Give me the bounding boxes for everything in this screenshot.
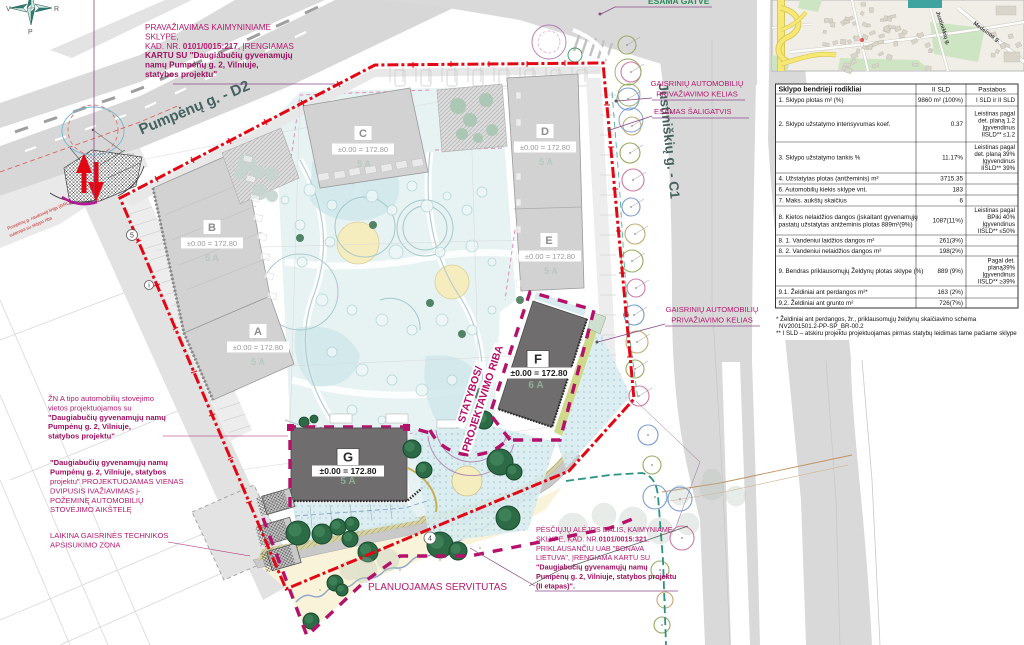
- svg-text:GAISRINIŲ AUTOMOBILIŲ: GAISRINIŲ AUTOMOBILIŲ: [651, 79, 744, 88]
- svg-text:planą39%: planą39%: [988, 265, 1016, 272]
- svg-text:Pagal det.: Pagal det.: [988, 258, 1016, 265]
- svg-text:Sklypo bendrieji rodikliai: Sklypo bendrieji rodikliai: [779, 87, 862, 94]
- svg-text:KARTU SU "Daugiabučių gyvenamų: KARTU SU "Daugiabučių gyvenamųjų: [145, 51, 293, 60]
- svg-text:SKLYPE, KAD. NR.0101/0015:321,: SKLYPE, KAD. NR.0101/0015:321,: [536, 534, 649, 543]
- svg-text:±0.00 = 172.80: ±0.00 = 172.80: [525, 252, 575, 261]
- svg-text:1087(11%): 1087(11%): [933, 218, 963, 225]
- svg-text:±0.00 = 172.80: ±0.00 = 172.80: [338, 145, 388, 154]
- svg-text:GAISRINIŲ AUTOMOBILIŲ: GAISRINIŲ AUTOMOBILIŲ: [666, 305, 759, 314]
- svg-text:5: 5: [130, 232, 134, 239]
- svg-text:1. Sklypo plotas m² (%): 1. Sklypo plotas m² (%): [779, 97, 844, 104]
- svg-text:(II etapas)".: (II etapas)".: [536, 581, 575, 590]
- svg-text:"Daugiabučių gyvenamųjų namų: "Daugiabučių gyvenamųjų namų: [50, 458, 168, 467]
- svg-text:7. Maks. aukštų skaičius: 7. Maks. aukštų skaičius: [779, 198, 847, 205]
- svg-text:"Daugiabučių gyvenamųjų namų: "Daugiabučių gyvenamųjų namų: [536, 563, 648, 572]
- svg-text:pastatų užstatytas antžeminis: pastatų užstatytas antžeminis plotas 889…: [779, 221, 913, 228]
- svg-text:Įgyvendinus: Įgyvendinus: [982, 125, 1015, 132]
- svg-text:R: R: [54, 6, 59, 13]
- svg-text:G: G: [343, 450, 353, 465]
- svg-text:B: B: [208, 222, 216, 234]
- svg-text:11.17%: 11.17%: [942, 155, 963, 162]
- svg-text:6 A: 6 A: [528, 380, 543, 391]
- svg-text:PRIVAŽIAVIMO KELIAS: PRIVAŽIAVIMO KELIAS: [656, 90, 738, 99]
- svg-text:D: D: [541, 126, 549, 138]
- svg-text:IISLD** ≤50%: IISLD** ≤50%: [978, 228, 1016, 235]
- svg-text:5 A: 5 A: [205, 253, 219, 263]
- svg-text:198(2%): 198(2%): [939, 248, 963, 255]
- svg-text:projektu" PROJEKTUOJAMAS VIENA: projektu" PROJEKTUOJAMAS VIENAS: [50, 477, 184, 486]
- svg-text:8. Kietos nelaidžios dangos (į: 8. Kietos nelaidžios dangos (įskaitant g…: [779, 214, 919, 221]
- svg-text:PRIVAŽIAVIMO KELIAS: PRIVAŽIAVIMO KELIAS: [671, 316, 753, 325]
- svg-text:"Daugiabučių gyvenamųjų namų: "Daugiabučių gyvenamųjų namų: [48, 413, 166, 422]
- svg-text:±0.00 = 172.80: ±0.00 = 172.80: [520, 143, 570, 152]
- svg-text:LAIKINA GAISRINĖS TECHNIKOS: LAIKINA GAISRINĖS TECHNIKOS: [50, 531, 168, 540]
- svg-text:±0.00 = 172.80: ±0.00 = 172.80: [187, 239, 237, 248]
- svg-text:6: 6: [959, 198, 963, 205]
- svg-text:9.2. Želdiniai ant grunto m²: 9.2. Želdiniai ant grunto m²: [779, 298, 854, 307]
- svg-text:Pumpėnų g. 2, Vilniuje,: Pumpėnų g. 2, Vilniuje,: [48, 422, 131, 431]
- svg-text:PĖSČIŲJŲ ALĖJOS DALIS, KAIMYNI: PĖSČIŲJŲ ALĖJOS DALIS, KAIMYNIAME: [536, 525, 673, 534]
- svg-text:namų Pumpėnų g. 2, Vilniuje,: namų Pumpėnų g. 2, Vilniuje,: [145, 61, 259, 70]
- svg-text:Įgyvendinus: Įgyvendinus: [982, 272, 1015, 279]
- svg-text:ESAMAS ŠALIGATVIS: ESAMAS ŠALIGATVIS: [654, 107, 732, 116]
- svg-text:5 A: 5 A: [251, 357, 265, 367]
- svg-text:* Želdiniai ant perdangos, žr.: * Želdiniai ant perdangos, žr., priklaus…: [776, 315, 977, 323]
- svg-text:9.1. Želdiniai ant perdangos m: 9.1. Želdiniai ant perdangos m²*: [779, 287, 869, 296]
- svg-text:APSISUKIMO ZONA: APSISUKIMO ZONA: [50, 540, 121, 549]
- svg-text:5 A: 5 A: [357, 159, 371, 169]
- svg-text:statybos projektu": statybos projektu": [145, 70, 217, 79]
- svg-text:5 A: 5 A: [544, 266, 558, 276]
- svg-text:±0.00 = 172.80: ±0.00 = 172.80: [233, 343, 283, 352]
- svg-text:261(3%): 261(3%): [939, 238, 963, 245]
- svg-text:Įgyvendinus: Įgyvendinus: [982, 158, 1015, 165]
- svg-text:3. Sklypo užstatymo tankis %: 3. Sklypo užstatymo tankis %: [779, 155, 861, 162]
- svg-text:Pumpėnų g. 2, Vilniuje, statyb: Pumpėnų g. 2, Vilniuje, statybos: [50, 467, 166, 476]
- svg-text:2. Sklypo užstatymo intensyvum: 2. Sklypo užstatymo intensyvumas koef.: [779, 121, 891, 128]
- svg-text:8. 1. Vandeniui laidžios dango: 8. 1. Vandeniui laidžios dangos m²: [779, 238, 875, 245]
- svg-text:Pastabos: Pastabos: [978, 87, 1006, 94]
- svg-text:ESAMA GATVĖ: ESAMA GATVĖ: [648, 0, 710, 6]
- svg-text:I SLD ir II SLD: I SLD ir II SLD: [976, 97, 1016, 104]
- svg-text:3715.35: 3715.35: [940, 176, 963, 183]
- svg-text:II SLD: II SLD: [932, 87, 951, 94]
- svg-text:BPiki 40%: BPiki 40%: [987, 214, 1015, 221]
- svg-text:726(7%): 726(7%): [939, 300, 963, 307]
- svg-text:0.37: 0.37: [951, 121, 964, 128]
- svg-text:4: 4: [428, 535, 432, 542]
- svg-text:5 A: 5 A: [539, 157, 553, 167]
- svg-text:R12: R12: [127, 152, 135, 157]
- svg-text:E: E: [545, 235, 552, 247]
- svg-text:4. Užstatytas plotas (antžemin: 4. Užstatytas plotas (antžeminis) m²: [779, 176, 879, 183]
- svg-text:det. planą 1.2: det. planą 1.2: [978, 118, 1016, 125]
- svg-text:9. Bendras priklausomųjų Želdy: 9. Bendras priklausomųjų Želdynų plotas …: [779, 266, 924, 275]
- svg-text:5 A: 5 A: [340, 476, 355, 487]
- svg-text:6. Automobilių kiekis sklype v: 6. Automobilių kiekis sklype vnt.: [779, 187, 868, 194]
- svg-text:9860 m² (100%): 9860 m² (100%): [918, 97, 963, 104]
- svg-text:IISLD** ≤1.2: IISLD** ≤1.2: [982, 132, 1016, 139]
- svg-text:IISLD** 39%: IISLD** 39%: [981, 165, 1015, 172]
- svg-text:±0.00 = 172.80: ±0.00 = 172.80: [320, 466, 377, 476]
- svg-text:LIETUVA", ĮRENGIAMA KARTU SU: LIETUVA", ĮRENGIAMA KARTU SU: [536, 553, 650, 562]
- svg-text:163 (2%): 163 (2%): [937, 289, 963, 296]
- svg-text:NV2001501.2-PP-SP_BR-00.2: NV2001501.2-PP-SP_BR-00.2: [779, 323, 864, 330]
- svg-text:Leistinas pagal: Leistinas pagal: [974, 111, 1015, 118]
- svg-text:P: P: [28, 29, 33, 36]
- svg-text:Leistinas pagal: Leistinas pagal: [974, 207, 1015, 214]
- svg-text:POŽEMINĘ AUTOMOBILIŲ: POŽEMINĘ AUTOMOBILIŲ: [50, 496, 144, 505]
- svg-text:STOVĖJIMO AIKŠTELĘ: STOVĖJIMO AIKŠTELĘ: [50, 505, 132, 514]
- svg-text:F: F: [534, 352, 542, 367]
- svg-text:det. planą 39%: det. planą 39%: [974, 151, 1015, 158]
- svg-text:statybos projektu": statybos projektu": [48, 432, 115, 441]
- svg-text:±0.00 = 172.80: ±0.00 = 172.80: [511, 368, 568, 378]
- svg-text:vietos projektuojamos su: vietos projektuojamos su: [48, 403, 132, 412]
- svg-text:889 (9%): 889 (9%): [937, 268, 963, 275]
- svg-text:C: C: [359, 128, 367, 140]
- svg-text:V: V: [6, 6, 11, 13]
- svg-text:A: A: [254, 326, 262, 338]
- svg-text:PLANUOJAMAS SERVITUTAS: PLANUOJAMAS SERVITUTAS: [368, 582, 507, 593]
- svg-text:Įgyvendinus: Įgyvendinus: [982, 221, 1015, 228]
- svg-text:Leistinas pagal: Leistinas pagal: [974, 144, 1015, 151]
- svg-text:** I SLD – atskiru projektu pr: ** I SLD – atskiru projektu projektuojam…: [776, 330, 1017, 337]
- svg-text:PRIKLAUSANČIU UAB "BONAVA: PRIKLAUSANČIU UAB "BONAVA: [536, 544, 644, 553]
- svg-text:DVIPUSIS IVAŽIAVIMAS į-: DVIPUSIS IVAŽIAVIMAS į-: [50, 486, 141, 495]
- svg-text:ŽN A tipo automobilių stovėjim: ŽN A tipo automobilių stovėjimo: [48, 394, 154, 403]
- svg-text:183: 183: [952, 187, 963, 194]
- svg-text:SKLYPE,: SKLYPE,: [145, 32, 179, 41]
- svg-text:KAD. NR. 0101/0015:217, ĮRENGI: KAD. NR. 0101/0015:217, ĮRENGIAMAS: [145, 42, 294, 51]
- svg-text:IISLD** ≥39%: IISLD** ≥39%: [978, 279, 1016, 286]
- svg-text:8. 2. Vandeniui nelaidžios dan: 8. 2. Vandeniui nelaidžios dangos m²: [779, 248, 882, 255]
- svg-text:PRAVAŽIAVIMAS KAIMYNINIAME: PRAVAŽIAVIMAS KAIMYNINIAME: [145, 22, 272, 32]
- svg-text:Pumpėnų g. 2, Vilniuje, statyb: Pumpėnų g. 2, Vilniuje, statybos projekt…: [536, 572, 676, 581]
